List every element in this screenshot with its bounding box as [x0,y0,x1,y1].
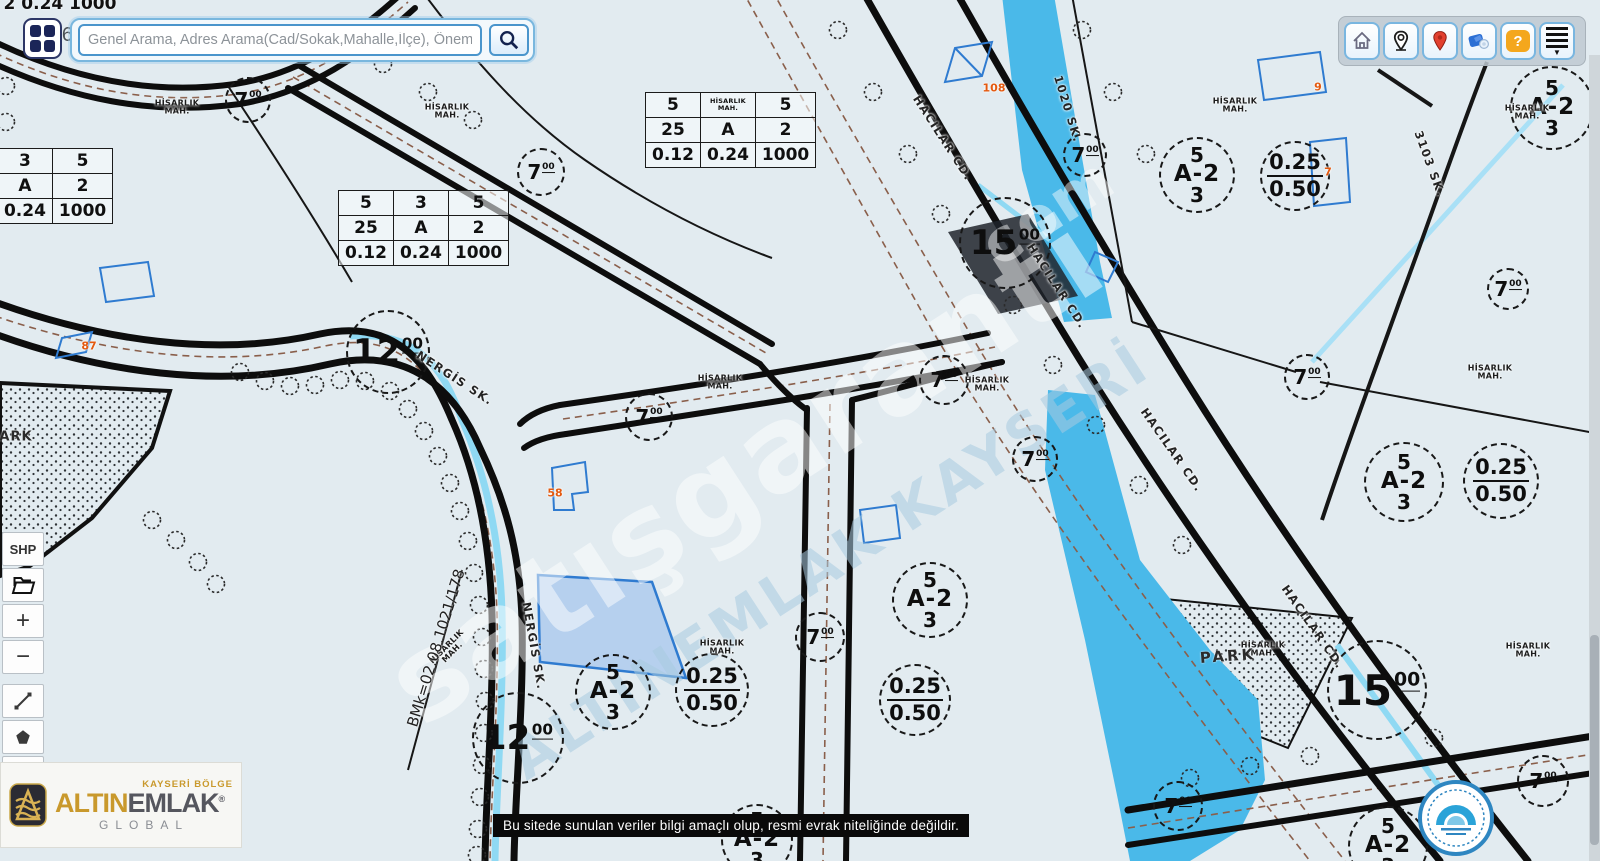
location-pin-outline-icon [1389,29,1413,53]
menu-button[interactable]: ▼ [1539,22,1575,60]
line-tool-icon [13,691,33,711]
my-location-button[interactable] [1383,22,1419,60]
help-button[interactable]: ? [1500,22,1536,60]
apps-grid-button[interactable] [23,18,62,59]
agency-logo-card: KAYSERİ BÖLGE ALTINEMLAK® GLOBAL [0,762,242,848]
scrollbar-track[interactable] [1589,55,1600,861]
zoom-out-button[interactable]: − [2,640,44,674]
search-button[interactable] [489,24,529,56]
logo-brand-name: ALTINEMLAK® [55,790,233,817]
altinemlak-badge-icon [9,783,47,827]
open-file-button[interactable] [2,568,44,602]
search-input[interactable] [78,24,482,56]
grid-square-icon [30,25,41,37]
home-button[interactable] [1344,22,1380,60]
hamburger-menu-icon: ▼ [1546,27,1568,55]
disclaimer-bar: Bu sitede sunulan veriler bilgi amaçlı o… [493,814,969,837]
creek-nergis [350,335,502,861]
polygon-tool-icon [14,728,32,746]
panorama-button[interactable] [1461,22,1497,60]
agency-logo-text: KAYSERİ BÖLGE ALTINEMLAK® GLOBAL [55,779,233,832]
home-icon [1350,29,1374,53]
grid-square-icon [44,25,55,37]
search-icon [498,29,520,51]
street-view-icon [1466,29,1492,53]
help-icon: ? [1506,30,1530,52]
left-tool-column: SHP + − [2,532,46,790]
marker-button[interactable] [1422,22,1458,60]
shp-upload-button[interactable]: SHP [2,532,44,566]
zoom-in-button[interactable]: + [2,604,44,638]
search-bar [70,18,535,62]
municipality-logo [1417,779,1495,857]
map-canvas[interactable] [0,0,1600,861]
highlighted-parcel[interactable] [538,575,686,678]
road-edges [0,0,1600,861]
grid-square-icon [44,40,55,52]
building-outlines [56,42,1350,543]
draw-line-tool-button[interactable] [2,684,44,718]
red-pin-icon [1428,29,1452,53]
map-viewer: satışgaranticomALTINEMLAK KAYSERİ53525A2… [0,0,1600,861]
creek-3103 [1312,85,1563,362]
draw-polygon-tool-button[interactable] [2,720,44,754]
grid-square-icon [30,40,41,52]
map-toolbar: ? ▼ [1338,16,1586,66]
scrollbar-thumb[interactable] [1590,635,1599,845]
folder-icon [10,574,36,596]
logo-sub-label: GLOBAL [55,818,233,832]
